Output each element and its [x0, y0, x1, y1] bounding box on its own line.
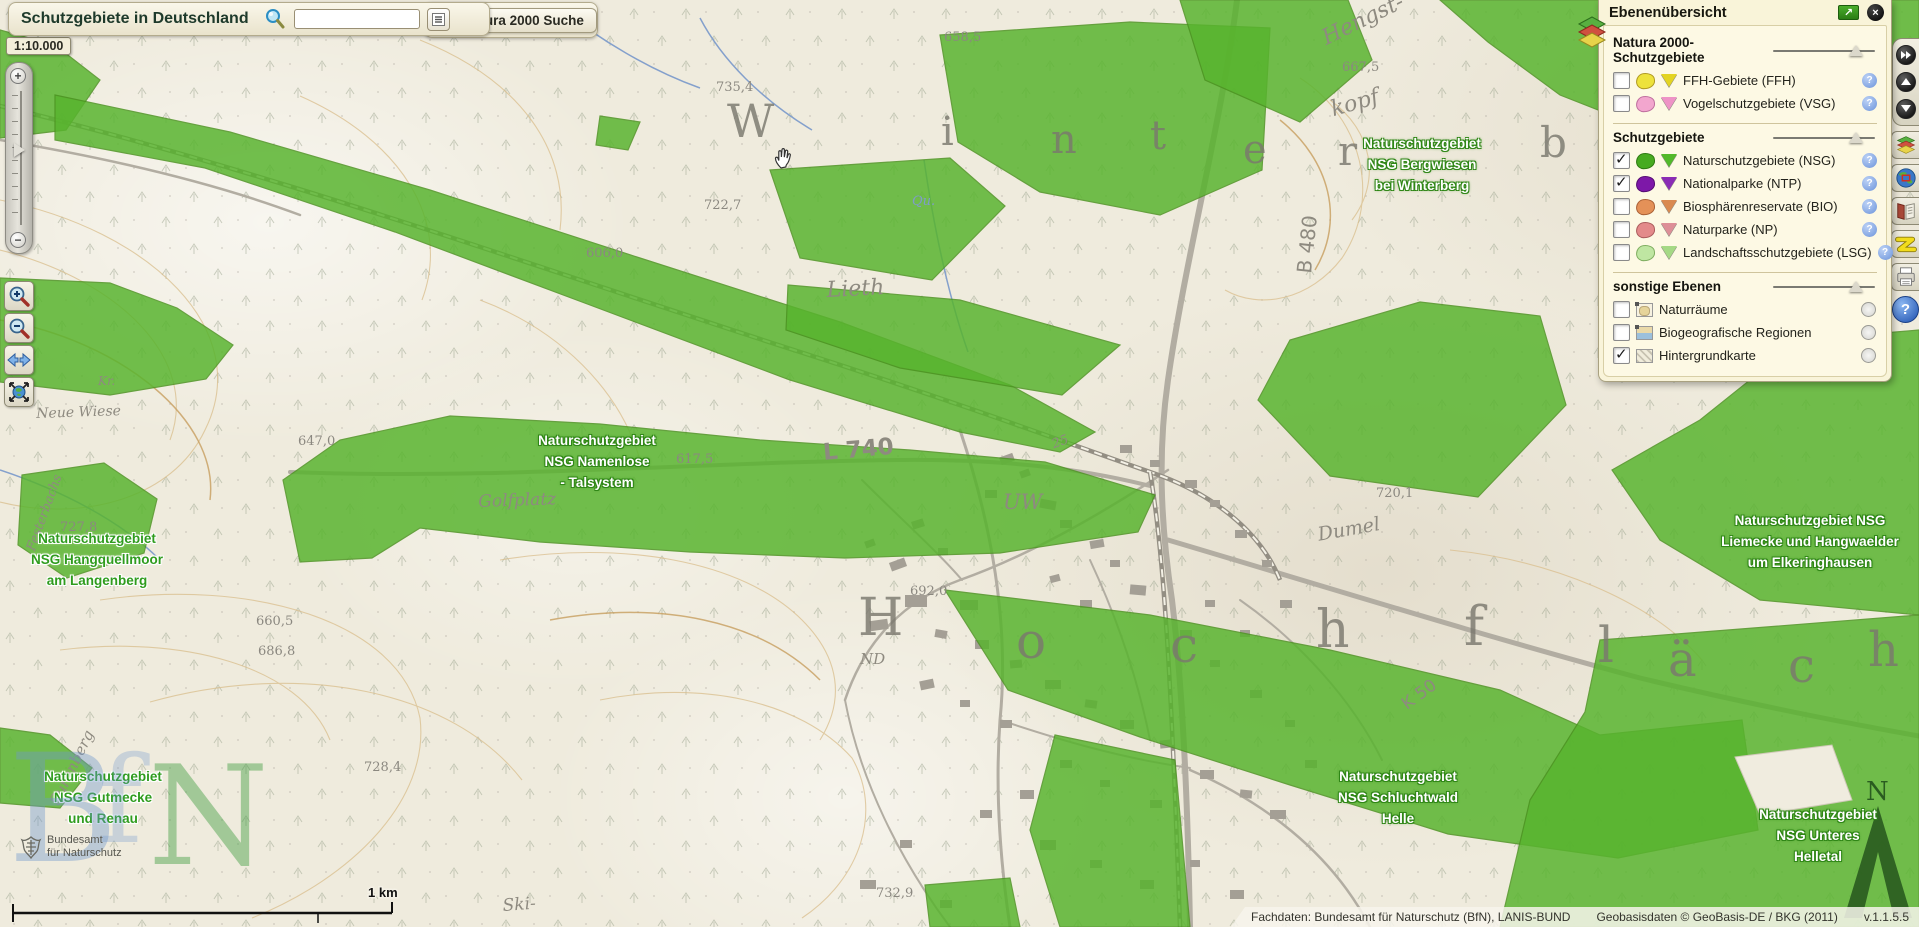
- pan-history-tool[interactable]: [4, 345, 34, 375]
- layer-label: Vogelschutzgebiete (VSG): [1683, 96, 1856, 111]
- layer-info-icon[interactable]: ?: [1862, 153, 1877, 168]
- help-icon[interactable]: ?: [1892, 296, 1919, 323]
- printer-icon: [1895, 266, 1917, 288]
- layer-section-title: Schutzgebiete: [1613, 130, 1773, 145]
- full-extent-tool[interactable]: [4, 377, 34, 407]
- bioregionen-icon: [1636, 326, 1653, 340]
- globe-icon: [1895, 167, 1917, 189]
- scale-indicator: 1:10.000: [6, 37, 71, 55]
- layer-panel-title: Ebenenübersicht: [1609, 5, 1838, 21]
- layer-info-icon[interactable]: ?: [1862, 73, 1877, 88]
- point-symbol-icon: [1661, 97, 1677, 110]
- zoom-out-magnifier-icon: [7, 316, 31, 340]
- zoom-slider-thumb[interactable]: [14, 143, 25, 157]
- area-symbol-icon: [1635, 244, 1656, 262]
- layer-section-header: sonstige Ebenen: [1613, 279, 1877, 294]
- layer-row: Naturparke (NP)?: [1613, 218, 1877, 241]
- zoom-in-magnifier-icon: [7, 284, 31, 308]
- opacity-slider[interactable]: [1773, 43, 1875, 58]
- app-title: Schutzgebiete in Deutschland: [21, 10, 249, 28]
- hatch-icon: [1636, 349, 1653, 363]
- layer-section-title: Natura 2000-Schutzgebiete: [1613, 35, 1773, 65]
- area-symbol-icon: [1635, 221, 1656, 239]
- layer-row: Naturschutzgebiete (NSG)?: [1613, 149, 1877, 172]
- overview-map-button[interactable]: [1891, 164, 1919, 192]
- bfn-logo: Bundesamt für Naturschutz: [20, 834, 122, 860]
- scalebar-label: 1 km: [368, 885, 398, 900]
- layer-checkbox[interactable]: [1613, 72, 1630, 89]
- layer-info-icon[interactable]: ?: [1862, 176, 1877, 191]
- area-symbol-icon: [1635, 198, 1656, 216]
- measure-zigzag-icon: [1895, 234, 1917, 254]
- layer-checkbox[interactable]: [1613, 347, 1630, 364]
- app-header: Schutzgebiete in Deutschland: [8, 2, 490, 36]
- fast-forward-icon[interactable]: [1896, 45, 1916, 65]
- layers-tool-button[interactable]: [1891, 131, 1919, 159]
- area-symbol-icon: [1635, 95, 1656, 113]
- arrow-down-icon[interactable]: [1896, 99, 1916, 119]
- naturraeume-icon: [1636, 303, 1653, 317]
- panel-nav-group: [1892, 38, 1919, 126]
- layer-label: Naturräume: [1659, 302, 1855, 317]
- list-icon: [432, 13, 445, 26]
- layer-checkbox[interactable]: [1613, 324, 1630, 341]
- attribution-fachdaten: Fachdaten: Bundesamt für Naturschutz (Bf…: [1251, 910, 1570, 924]
- layer-checkbox[interactable]: [1613, 152, 1630, 169]
- bfn-logo-line1: Bundesamt: [47, 834, 122, 847]
- area-symbol-icon: [1635, 175, 1656, 193]
- layer-row: Naturräume: [1613, 298, 1877, 321]
- layers-icon: [1895, 134, 1917, 156]
- section-divider: [1613, 123, 1877, 124]
- layer-row: Nationalparke (NTP)?: [1613, 172, 1877, 195]
- layer-checkbox[interactable]: [1613, 301, 1630, 318]
- app-version: v.1.1.5.5: [1864, 910, 1909, 924]
- layer-panel: Ebenenübersicht ↗ × Natura 2000-Schutzge…: [1598, 0, 1892, 382]
- layer-section-title: sonstige Ebenen: [1613, 279, 1773, 294]
- measure-tool-button[interactable]: [1891, 230, 1919, 258]
- layer-row: Landschaftsschutzgebiete (LSG)?: [1613, 241, 1877, 264]
- search-icon: [263, 7, 287, 31]
- legend-button[interactable]: [1891, 197, 1919, 225]
- zoom-in-button[interactable]: +: [10, 68, 26, 84]
- protected-area-polygon[interactable]: [1030, 735, 1190, 927]
- layers-stack-icon[interactable]: [1577, 12, 1607, 57]
- layer-radio-icon[interactable]: [1861, 348, 1876, 363]
- opacity-slider-thumb[interactable]: [1849, 45, 1863, 56]
- map-application: N1 km BfNWinterbHochflächLiethGolfplatzD…: [0, 0, 1919, 927]
- layer-panel-header: Ebenenübersicht ↗ ×: [1599, 0, 1891, 25]
- panel-expand-icon[interactable]: ↗: [1838, 5, 1859, 20]
- layer-row: Biogeografische Regionen: [1613, 321, 1877, 344]
- layer-checkbox[interactable]: [1613, 95, 1630, 112]
- protected-area-polygon[interactable]: [925, 878, 1020, 927]
- opacity-slider[interactable]: [1773, 279, 1875, 294]
- layer-label: FFH-Gebiete (FFH): [1683, 73, 1856, 88]
- layer-info-icon[interactable]: ?: [1862, 222, 1877, 237]
- layer-label: Naturparke (NP): [1683, 222, 1856, 237]
- zoom-slider-ticks: [12, 95, 18, 223]
- map-tool-buttons: [4, 281, 34, 407]
- search-results-button[interactable]: [427, 8, 450, 31]
- layer-row: Biosphärenreservate (BIO)?: [1613, 195, 1877, 218]
- layer-info-icon[interactable]: ?: [1878, 245, 1893, 260]
- full-extent-globe-icon: [7, 380, 31, 404]
- layer-row: Hintergrundkarte: [1613, 344, 1877, 367]
- bfn-logo-line2: für Naturschutz: [47, 847, 122, 860]
- zoom-slider[interactable]: + −: [5, 62, 33, 254]
- search-input[interactable]: [294, 9, 420, 29]
- pan-arrows-icon: [7, 350, 31, 370]
- layer-row: FFH-Gebiete (FFH)?: [1613, 69, 1877, 92]
- point-symbol-icon: [1661, 177, 1677, 190]
- section-divider: [1613, 272, 1877, 273]
- layer-checkbox[interactable]: [1613, 244, 1630, 261]
- area-symbol-icon: [1635, 72, 1656, 90]
- layer-info-icon[interactable]: ?: [1862, 199, 1877, 214]
- area-symbol-icon: [1635, 152, 1656, 170]
- layer-panel-body: Natura 2000-SchutzgebieteFFH-Gebiete (FF…: [1603, 25, 1887, 377]
- layer-label: Landschaftsschutzgebiete (LSG): [1683, 245, 1872, 260]
- legend-book-icon: [1895, 200, 1917, 222]
- svg-text:N: N: [1866, 777, 1889, 807]
- eagle-icon: [20, 834, 42, 860]
- opacity-slider-thumb[interactable]: [1849, 281, 1863, 292]
- point-symbol-icon: [1661, 154, 1677, 167]
- attribution-geodata: Geobasisdaten © GeoBasis-DE / BKG (2011): [1596, 910, 1837, 924]
- layer-checkbox[interactable]: [1613, 198, 1630, 215]
- layer-label: Naturschutzgebiete (NSG): [1683, 153, 1856, 168]
- layer-label: Nationalparke (NTP): [1683, 176, 1856, 191]
- layer-section-header: Schutzgebiete: [1613, 130, 1877, 145]
- point-symbol-icon: [1661, 200, 1677, 213]
- point-symbol-icon: [1661, 74, 1677, 87]
- point-symbol-icon: [1661, 246, 1677, 259]
- arrow-up-icon[interactable]: [1896, 72, 1916, 92]
- layer-radio-icon[interactable]: [1861, 302, 1876, 317]
- layer-row: Vogelschutzgebiete (VSG)?: [1613, 92, 1877, 115]
- panel-close-icon[interactable]: ×: [1867, 4, 1884, 21]
- attribution-bar: Fachdaten: Bundesamt für Naturschutz (Bf…: [1231, 907, 1919, 927]
- layer-section-header: Natura 2000-Schutzgebiete: [1613, 35, 1877, 65]
- layer-checkbox[interactable]: [1613, 175, 1630, 192]
- zoom-out-button[interactable]: −: [10, 232, 26, 248]
- point-symbol-icon: [1661, 223, 1677, 236]
- layer-label: Biosphärenreservate (BIO): [1683, 199, 1856, 214]
- layer-checkbox[interactable]: [1613, 221, 1630, 238]
- layer-label: Biogeografische Regionen: [1659, 325, 1855, 340]
- opacity-slider[interactable]: [1773, 130, 1875, 145]
- zoom-slider-track[interactable]: [20, 91, 22, 225]
- layer-radio-icon[interactable]: [1861, 325, 1876, 340]
- layer-label: Hintergrundkarte: [1659, 348, 1855, 363]
- zoom-in-box-tool[interactable]: [4, 281, 34, 311]
- zoom-out-box-tool[interactable]: [4, 313, 34, 343]
- layer-info-icon[interactable]: ?: [1862, 96, 1877, 111]
- right-toolbar: ?: [1891, 38, 1919, 323]
- print-button[interactable]: [1891, 263, 1919, 291]
- opacity-slider-thumb[interactable]: [1849, 132, 1863, 143]
